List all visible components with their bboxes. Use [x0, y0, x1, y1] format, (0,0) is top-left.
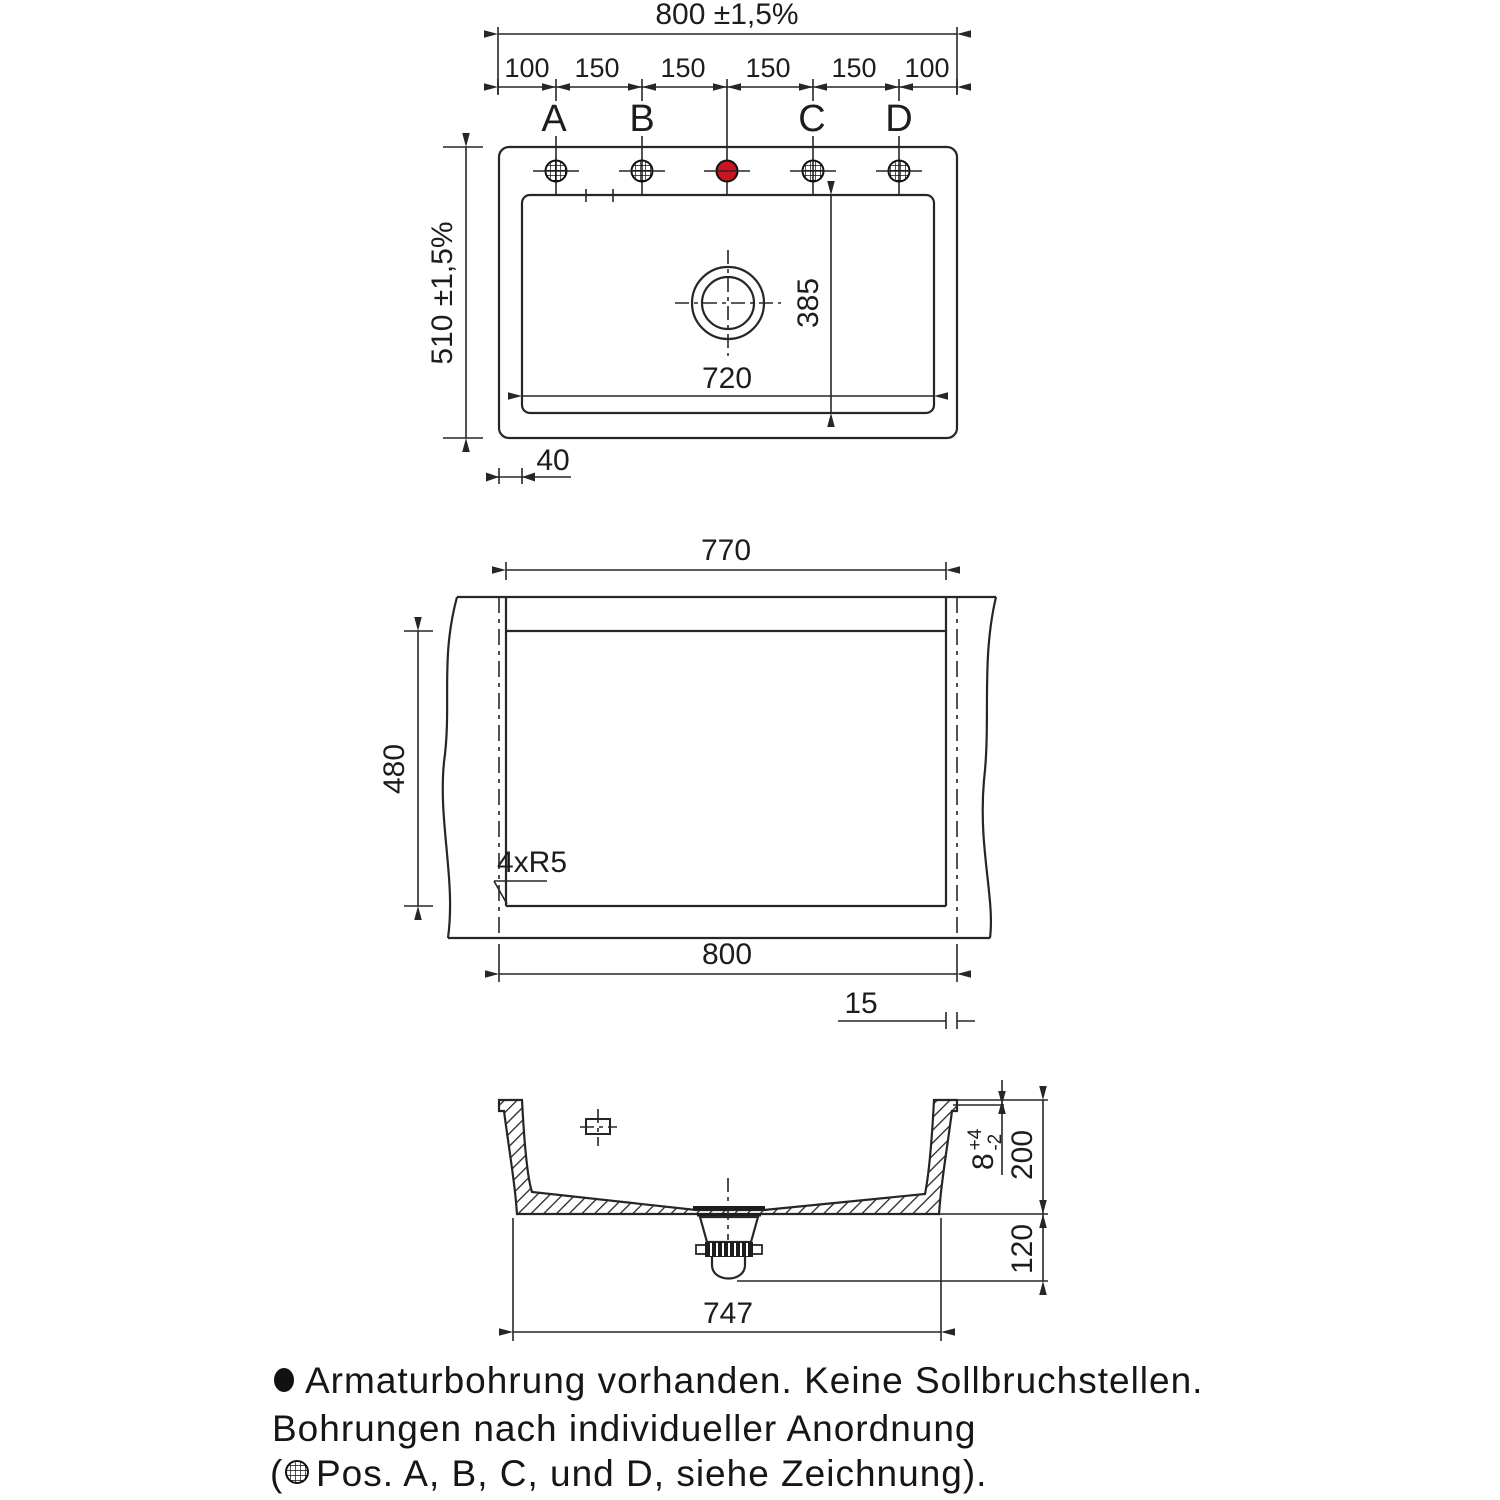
- segment-150-2: 150: [660, 53, 705, 83]
- dim-bowl-width: 720: [522, 362, 934, 396]
- countertop-band: [443, 597, 996, 938]
- dim-bowl-depth-text: 385: [792, 278, 825, 328]
- dim-bowl-depth: 385: [792, 195, 831, 413]
- hole-label-A: A: [541, 98, 567, 140]
- segment-150-1: 150: [574, 53, 619, 83]
- dim-cutout-width-text: 770: [701, 534, 751, 567]
- dim-overhang: 15: [838, 987, 975, 1029]
- segment-150-3: 150: [745, 53, 790, 83]
- notes-block: Armaturbohrung vorhanden. Keine Sollbruc…: [270, 1360, 1203, 1494]
- section-body-hatched: [499, 1100, 957, 1214]
- break-line-left: [443, 597, 457, 938]
- dim-edge-offset: 40: [486, 444, 571, 484]
- cutout-rectangle: [506, 597, 946, 906]
- cutout-view: 770 480 4xR5 800 15: [378, 534, 996, 1029]
- top-view: 800 ±1,5% 100 150 150 150 150 100 A: [426, 0, 957, 484]
- segment-100-left: 100: [504, 53, 549, 83]
- dim-bowl-width-text: 720: [702, 362, 752, 395]
- dim-hole-segments: 100 150 150 150 150 100: [498, 53, 957, 95]
- section-tap-hole: [580, 1109, 617, 1146]
- dim-below-bowl: 120: [1006, 1214, 1043, 1281]
- dim-overall-width-text: 800 ±1,5%: [655, 0, 798, 31]
- note-line-3-paren: (: [270, 1453, 283, 1494]
- dim-depth: 200: [1006, 1100, 1043, 1214]
- section-view: 8+4-2 200 120 747: [499, 1080, 1048, 1341]
- technical-drawing-page: 800 ±1,5% 100 150 150 150 150 100 A: [0, 0, 1500, 1500]
- break-line-right: [983, 597, 996, 938]
- segment-100-right: 100: [904, 53, 949, 83]
- dim-below-bowl-text: 120: [1006, 1224, 1039, 1274]
- hole-label-B: B: [629, 98, 654, 140]
- dim-outer-width-text: 800: [702, 938, 752, 971]
- note-line-2: Bohrungen nach individueller Anordnung: [272, 1408, 977, 1449]
- dim-edge-offset-text: 40: [536, 444, 569, 477]
- segment-150-4: 150: [831, 53, 876, 83]
- dim-cutout-width: 770: [506, 534, 946, 580]
- hole-label-D: D: [885, 98, 912, 140]
- dim-rim-text: 8+4-2: [965, 1128, 1006, 1170]
- dim-base-width-text: 747: [703, 1297, 753, 1330]
- drain-nut: [696, 1242, 762, 1257]
- drain-assembly: [693, 1178, 765, 1279]
- dim-overall-height: 510 ±1,5%: [426, 147, 483, 438]
- dim-cutout-height: 480: [378, 631, 433, 906]
- bullet-dot-icon: [274, 1368, 294, 1392]
- drain-flange-top: [693, 1206, 765, 1211]
- dim-cutout-height-text: 480: [378, 744, 411, 794]
- corner-radius-text: 4xR5: [497, 846, 567, 879]
- dim-overall-height-text: 510 ±1,5%: [426, 221, 459, 364]
- dim-rim: 8+4-2: [965, 1080, 1006, 1175]
- drain-symbol: [675, 250, 781, 356]
- drain-cup: [700, 1217, 758, 1242]
- dim-depth-text: 200: [1006, 1130, 1039, 1180]
- dim-overhang-text: 15: [844, 987, 877, 1020]
- drain-pipe-end: [712, 1257, 745, 1279]
- note-line-1: Armaturbohrung vorhanden. Keine Sollbruc…: [305, 1360, 1203, 1401]
- note-line-3-body: Pos. A, B, C, und D, siehe Zeichnung).: [316, 1453, 987, 1494]
- dim-outer-width: 800: [499, 938, 957, 982]
- hole-label-C: C: [798, 98, 825, 140]
- tap-hole-symbols: [533, 161, 922, 182]
- sink-dimension-drawing: 800 ±1,5% 100 150 150 150 150 100 A: [0, 0, 1500, 1500]
- crosshatch-hole-icon: [286, 1461, 308, 1483]
